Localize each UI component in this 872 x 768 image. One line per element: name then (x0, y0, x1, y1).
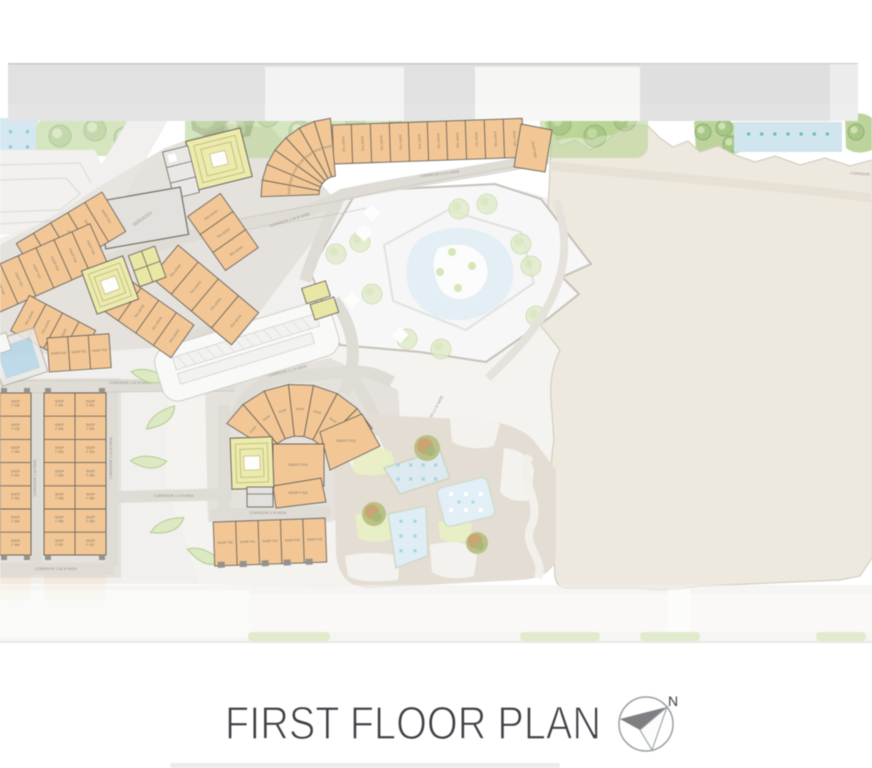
svg-text:N: N (668, 693, 678, 709)
svg-text:FIRST FLOOR PLAN: FIRST FLOOR PLAN (225, 697, 601, 749)
